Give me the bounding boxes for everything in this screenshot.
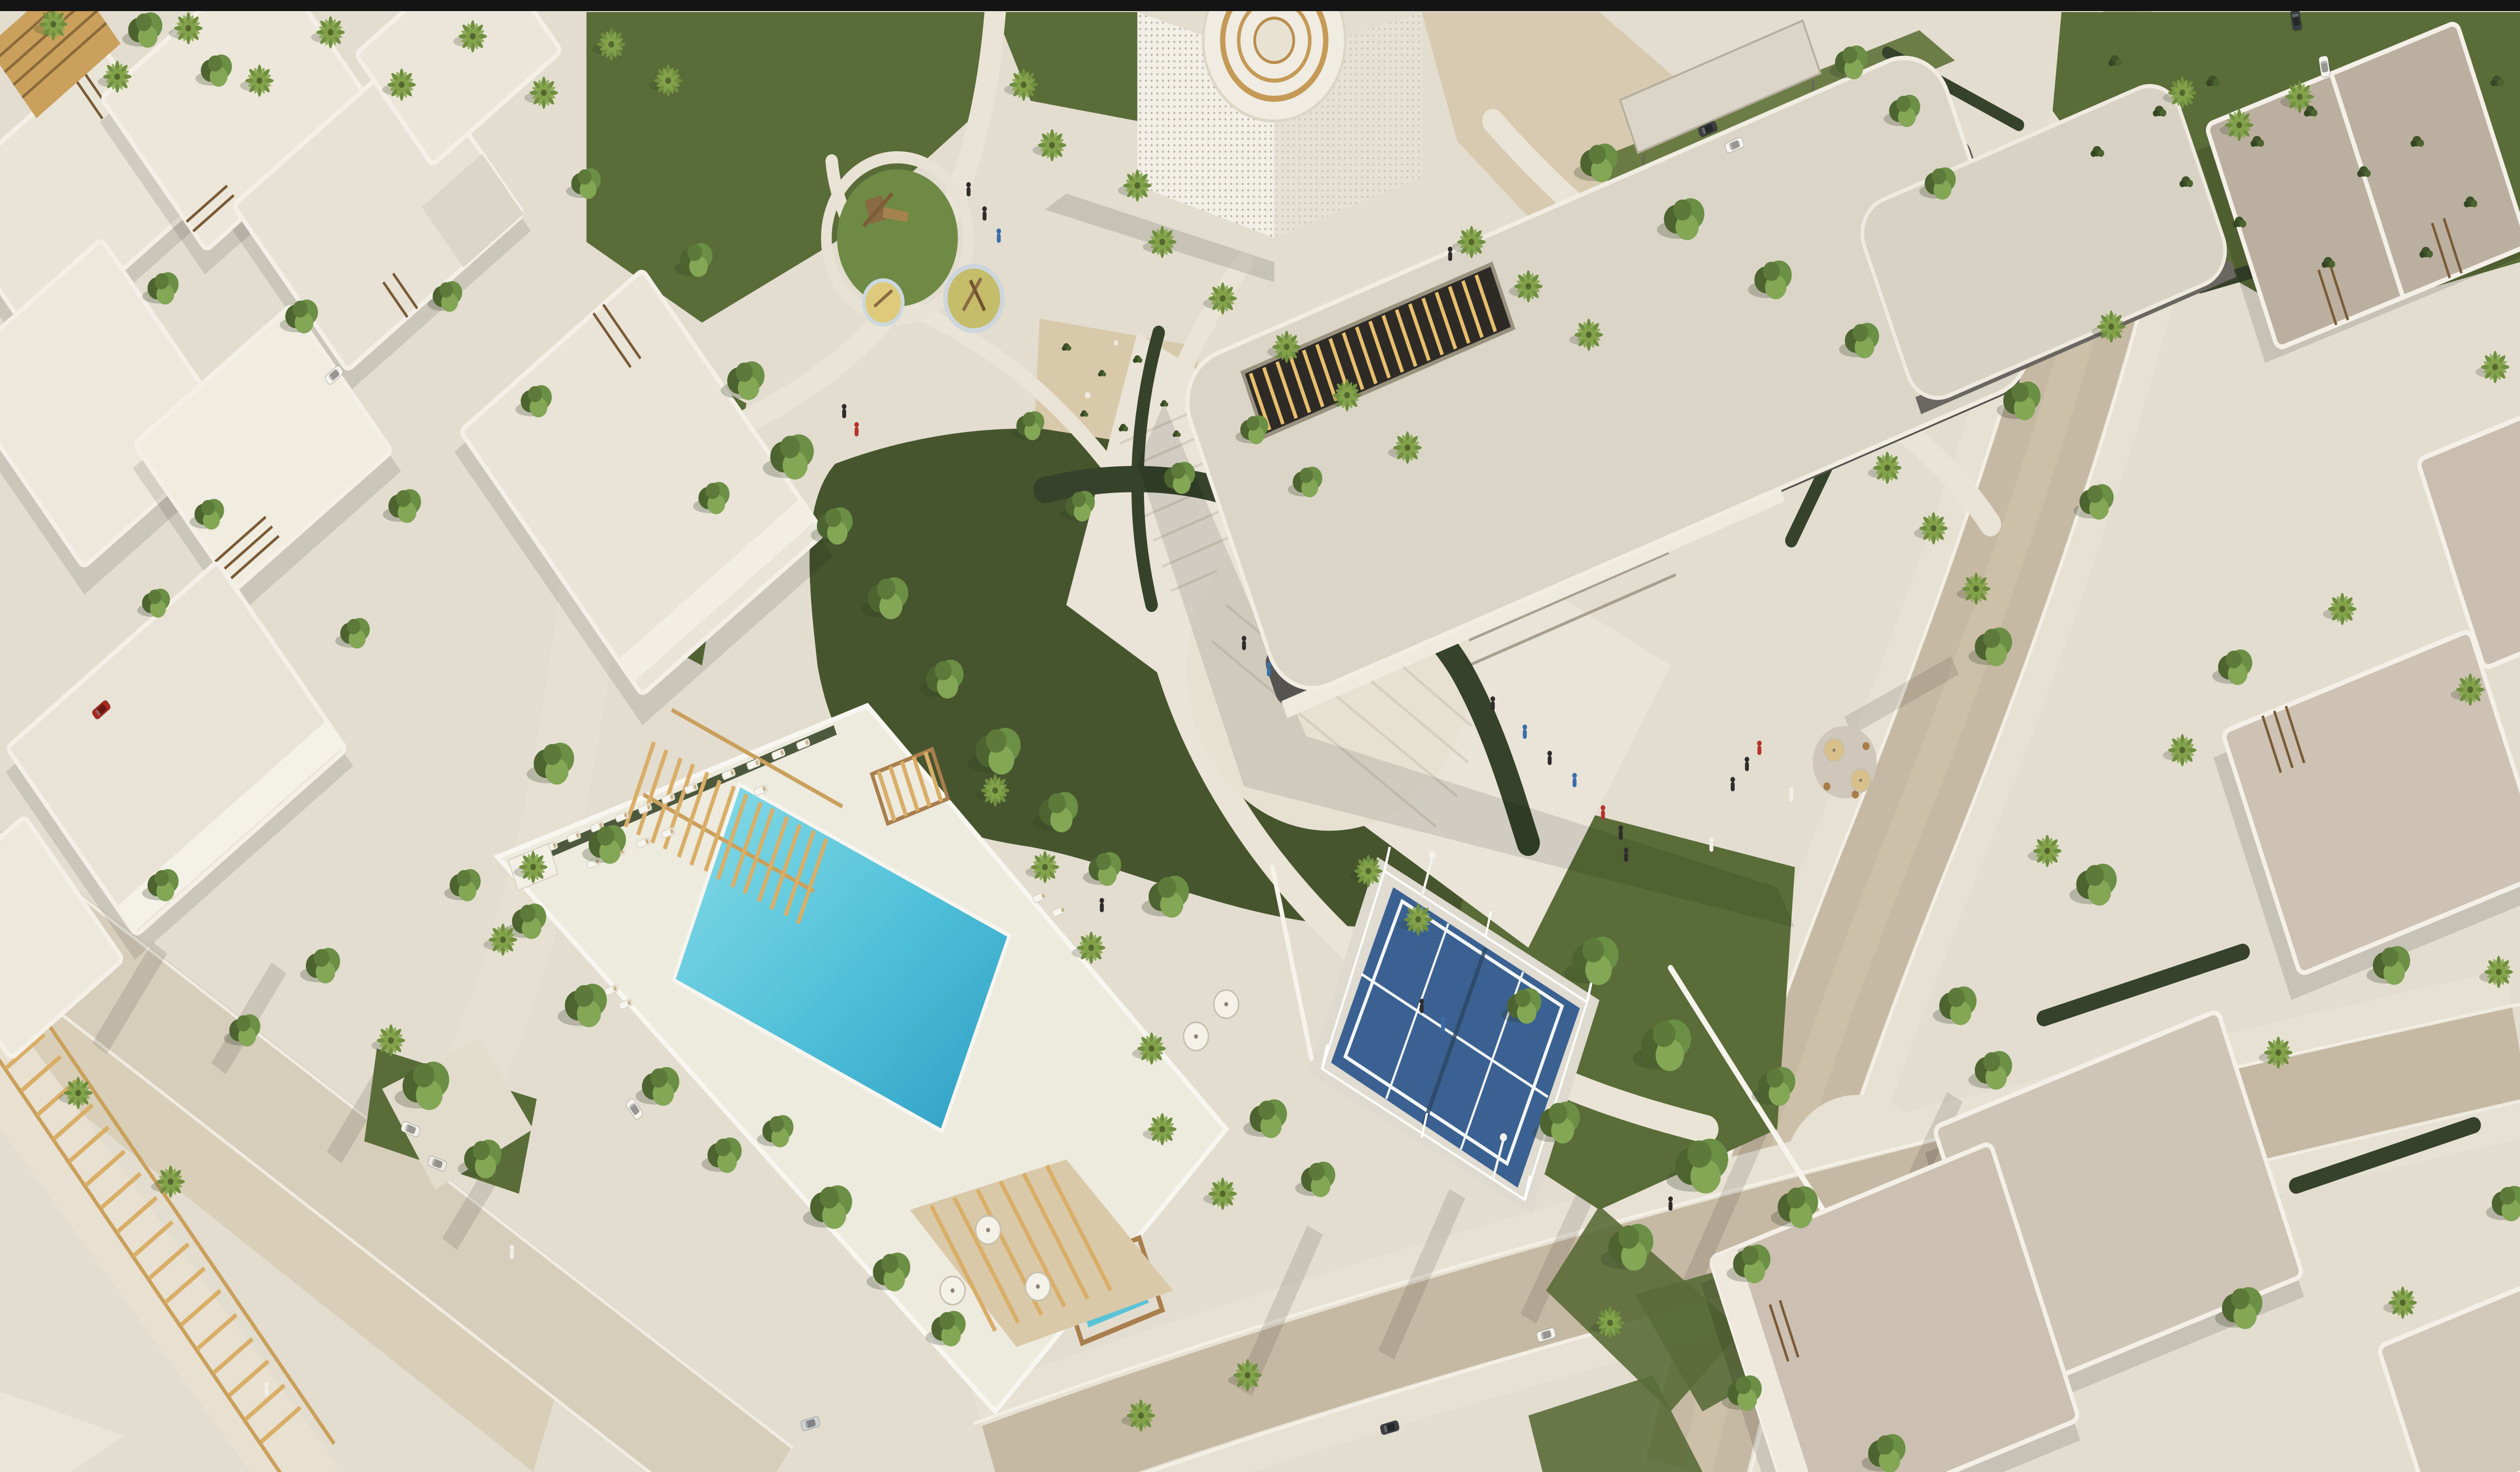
cafe-terrace [1813,726,1877,799]
umbrella [1026,1272,1050,1301]
aerial-render [0,0,2520,1472]
umbrella [940,1276,965,1305]
umbrella [976,1216,1000,1244]
cafe-umbrella [1851,769,1870,792]
umbrella [1183,1022,1208,1051]
letterbox-bar [0,0,2520,11]
cafe-umbrella [1824,739,1844,762]
render-stage [0,0,2520,1472]
umbrella [1214,990,1238,1018]
